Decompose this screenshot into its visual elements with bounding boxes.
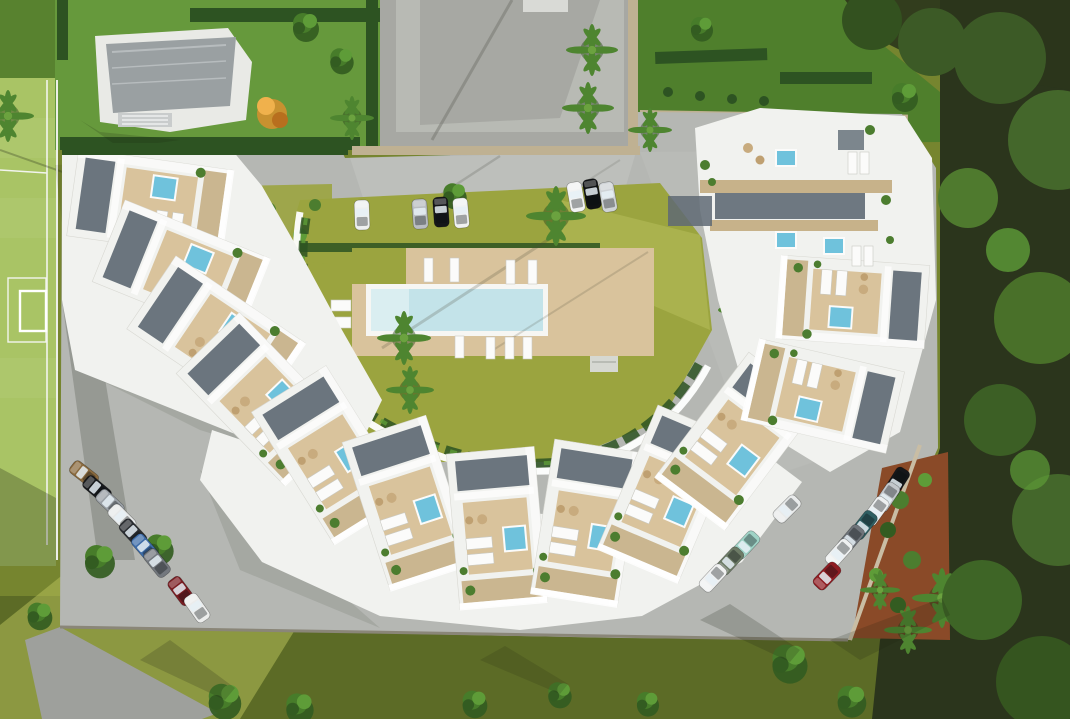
sun-lounger — [455, 336, 464, 358]
sun-lounger — [848, 152, 857, 174]
tree — [637, 692, 659, 717]
sun-lounger — [450, 258, 459, 282]
tree — [85, 545, 115, 578]
apartment-roof-unit — [775, 255, 930, 349]
rooftop-hot-tub — [776, 150, 796, 166]
site-top-wall — [352, 146, 640, 155]
hedge-row — [190, 8, 380, 22]
sun-lounger — [864, 246, 873, 266]
tree — [28, 603, 53, 631]
tree — [286, 693, 313, 719]
tree — [691, 17, 713, 42]
hedge-row — [780, 72, 872, 84]
aerial-render — [0, 0, 1070, 719]
car — [432, 197, 449, 228]
sun-lounger — [523, 337, 532, 359]
rooftop-hot-tub — [776, 232, 796, 248]
shed-roof — [523, 0, 568, 12]
rooftop-hot-tub — [824, 238, 844, 254]
tree — [293, 13, 319, 42]
sun-lounger — [505, 337, 514, 359]
car — [354, 200, 370, 231]
sun-lounger — [486, 337, 495, 359]
neighbor-paved-plot — [380, 0, 640, 159]
tree — [892, 83, 918, 112]
sun-lounger — [331, 300, 351, 311]
sun-lounger — [506, 260, 515, 284]
scene-canvas — [0, 0, 1070, 719]
car — [411, 199, 428, 230]
tree — [330, 48, 353, 74]
sun-lounger — [528, 260, 537, 284]
hedge-row — [57, 0, 68, 60]
site-top-hedge — [62, 143, 348, 155]
car — [452, 197, 470, 228]
tree — [463, 691, 488, 719]
sun-lounger — [852, 246, 861, 266]
tree — [838, 686, 867, 718]
sun-lounger — [860, 152, 869, 174]
hedge-row — [366, 0, 378, 146]
neighbor-villa — [95, 28, 252, 132]
sun-lounger — [424, 258, 433, 282]
